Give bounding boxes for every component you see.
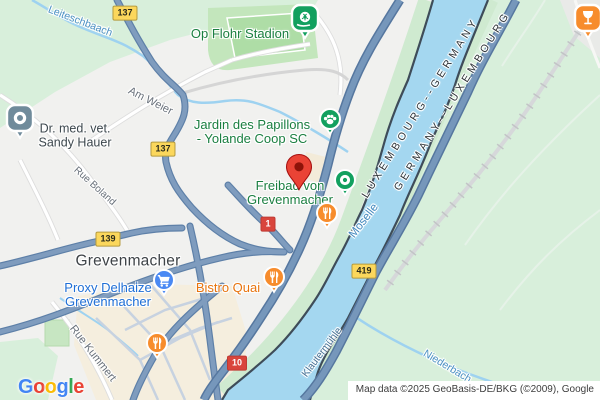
shopping-pin-icon[interactable] bbox=[151, 268, 177, 303]
route-badge-139: 139 bbox=[95, 232, 120, 247]
route-badge-137-north: 137 bbox=[112, 6, 137, 21]
route-badge-10: 10 bbox=[227, 356, 247, 371]
freibad-pin-icon[interactable] bbox=[332, 168, 358, 203]
poi-label-proxy-delhaize[interactable]: Proxy Delhaize Grevenmacher bbox=[64, 281, 151, 309]
stadium-pin-icon[interactable] bbox=[289, 3, 321, 46]
poi-label-line: Dr. med. vet. bbox=[39, 123, 112, 137]
restaurant-pin-icon[interactable] bbox=[144, 331, 170, 366]
destination-marker-icon[interactable] bbox=[285, 153, 313, 196]
restaurant-pin-icon[interactable] bbox=[314, 201, 340, 236]
poi-label-bistro-quai[interactable]: Bistro Quai bbox=[196, 281, 260, 295]
logo-letter: o bbox=[45, 376, 57, 399]
poi-label-line: - Yolande Coop SC bbox=[194, 132, 310, 146]
map-viewport[interactable]: Leiteschbaach Niederbach Moselle Klauter… bbox=[0, 0, 600, 400]
poi-label-jardin-des-papillons[interactable]: Jardin des Papillons - Yolande Coop SC bbox=[194, 118, 310, 146]
bar-pin-icon[interactable] bbox=[572, 3, 600, 46]
map-attribution: Map data ©2025 GeoBasis-DE/BKG (©2009), … bbox=[348, 381, 600, 400]
logo-letter: g bbox=[57, 376, 69, 399]
google-logo[interactable]: Google bbox=[18, 376, 84, 399]
poi-label-vet-sandy-hauer[interactable]: Dr. med. vet. Sandy Hauer bbox=[39, 123, 112, 150]
poi-label-line: Proxy Delhaize bbox=[64, 281, 151, 295]
vet-pin-icon[interactable] bbox=[4, 103, 36, 146]
poi-label-line: Sandy Hauer bbox=[39, 136, 112, 150]
restaurant-pin-icon[interactable] bbox=[261, 265, 287, 300]
logo-letter: o bbox=[33, 376, 45, 399]
route-badge-419: 419 bbox=[351, 264, 376, 279]
route-badge-1: 1 bbox=[260, 217, 275, 232]
small-park bbox=[45, 320, 69, 346]
poi-label-line: Jardin des Papillons bbox=[194, 118, 310, 132]
poi-label-line: Grevenmacher bbox=[64, 295, 151, 309]
logo-letter: e bbox=[73, 376, 84, 399]
poi-label-op-flohr-stadion[interactable]: Op Flohr Stadion bbox=[191, 27, 289, 41]
route-badge-137-mid: 137 bbox=[150, 142, 175, 157]
paw-pin-icon[interactable] bbox=[317, 107, 343, 142]
logo-letter: G bbox=[18, 376, 33, 399]
